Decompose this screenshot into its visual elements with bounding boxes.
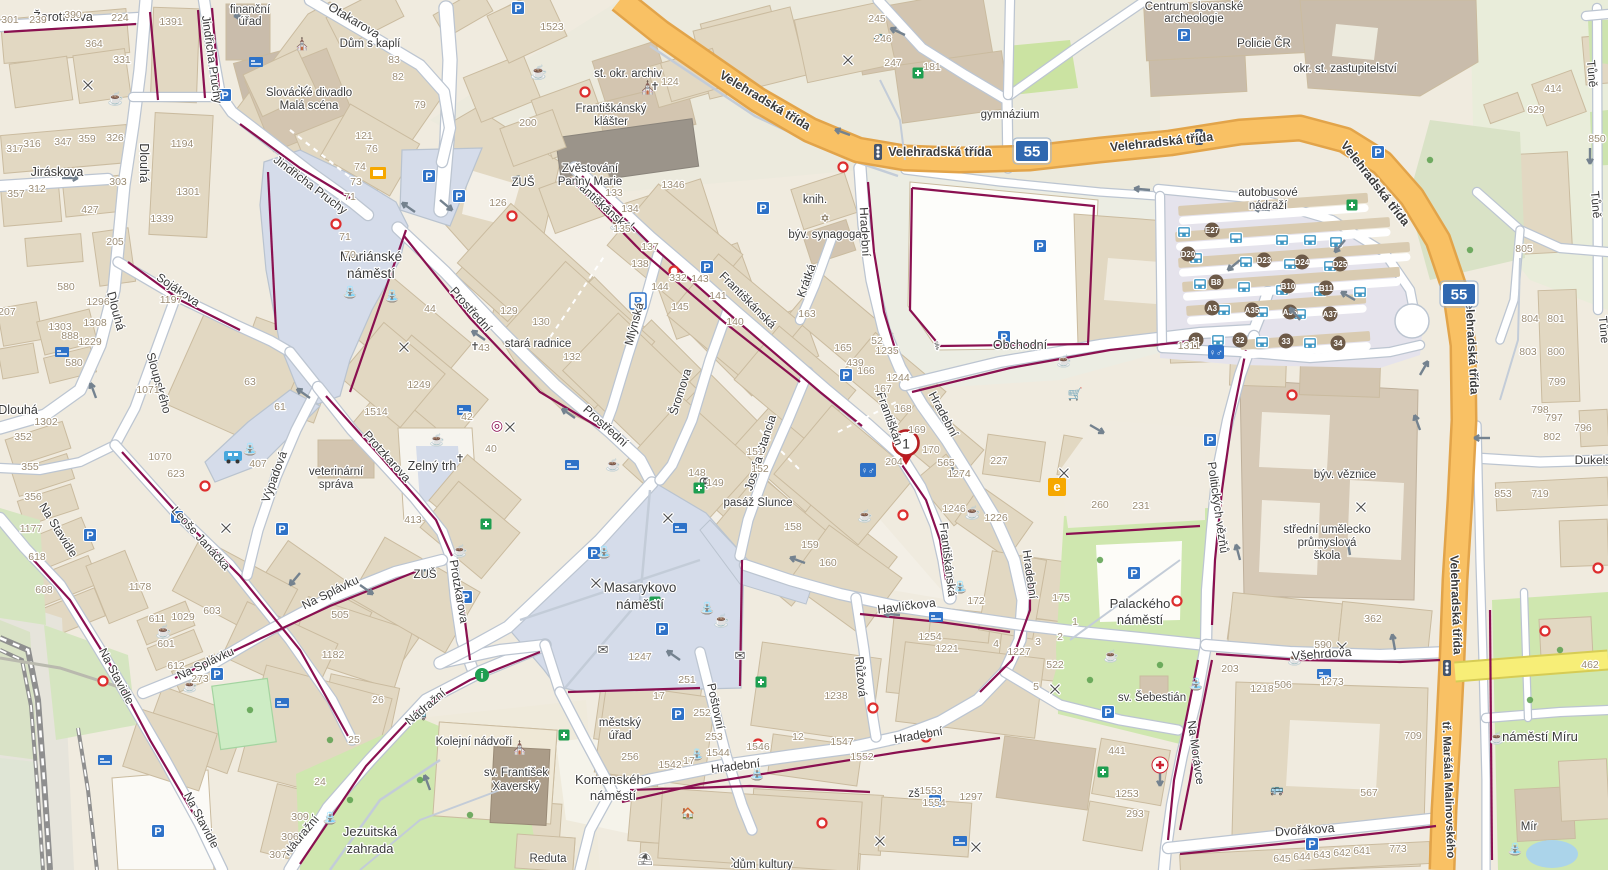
svg-text:Tůně: Tůně <box>1588 190 1604 219</box>
svg-text:293: 293 <box>1126 808 1144 820</box>
svg-text:306: 306 <box>281 831 299 843</box>
svg-text:autobusové: autobusové <box>1238 187 1297 199</box>
svg-text:A37: A37 <box>1323 310 1338 319</box>
svg-text:sv. František: sv. František <box>484 767 549 779</box>
svg-text:správa: správa <box>319 479 354 491</box>
svg-text:Jiráskova: Jiráskova <box>31 165 84 179</box>
svg-text:205: 205 <box>106 236 124 248</box>
svg-text:25: 25 <box>348 734 360 746</box>
svg-text:⨉: ⨉ <box>843 53 854 68</box>
svg-text:♀♂: ♀♂ <box>1209 348 1223 358</box>
svg-text:⛪: ⛪ <box>512 739 528 755</box>
svg-text:knih.: knih. <box>803 194 827 206</box>
svg-text:175: 175 <box>1052 592 1070 604</box>
svg-text:⨉: ⨉ <box>83 78 94 93</box>
svg-text:P: P <box>759 203 766 215</box>
svg-text:307: 307 <box>269 849 287 861</box>
svg-text:1544: 1544 <box>706 747 730 759</box>
svg-text:773: 773 <box>1389 843 1407 855</box>
svg-text:326: 326 <box>106 132 124 144</box>
svg-text:⚕: ⚕ <box>934 339 941 353</box>
svg-text:1: 1 <box>1072 616 1078 628</box>
svg-text:1552: 1552 <box>850 751 874 763</box>
svg-text:804: 804 <box>1521 313 1539 325</box>
svg-text:klášter: klášter <box>594 116 628 128</box>
svg-text:⛲: ⛲ <box>1508 842 1523 856</box>
svg-text:Mír: Mír <box>1521 821 1538 833</box>
svg-text:251: 251 <box>678 674 696 686</box>
svg-text:P: P <box>425 171 432 183</box>
svg-text:427: 427 <box>81 204 99 216</box>
svg-text:ZUŠ: ZUŠ <box>414 568 437 581</box>
svg-text:121: 121 <box>355 130 373 142</box>
svg-text:362: 362 <box>1364 613 1382 625</box>
svg-text:1553: 1553 <box>919 785 943 797</box>
svg-text:✝: ✝ <box>650 81 659 93</box>
svg-text:B8: B8 <box>1211 278 1222 287</box>
svg-text:gymnázium: gymnázium <box>981 109 1040 121</box>
svg-text:144: 144 <box>651 281 669 293</box>
svg-text:32: 32 <box>1236 336 1245 345</box>
svg-text:12: 12 <box>792 731 804 743</box>
svg-text:☕: ☕ <box>108 90 124 106</box>
svg-text:160: 160 <box>819 557 837 569</box>
svg-text:169: 169 <box>908 424 926 436</box>
svg-text:✉: ✉ <box>598 642 609 657</box>
svg-text:1542: 1542 <box>658 759 682 771</box>
svg-text:797: 797 <box>1545 412 1563 424</box>
svg-text:55: 55 <box>1024 144 1041 161</box>
svg-text:Policie ČR: Policie ČR <box>1237 37 1291 50</box>
svg-text:390: 390 <box>64 9 82 21</box>
svg-text:1273: 1273 <box>1320 676 1344 688</box>
svg-text:☕: ☕ <box>606 457 621 472</box>
svg-text:130: 130 <box>532 316 550 328</box>
svg-text:462: 462 <box>1581 659 1599 671</box>
svg-text:1221: 1221 <box>935 643 959 655</box>
svg-text:168: 168 <box>894 403 912 415</box>
svg-text:247: 247 <box>884 57 902 69</box>
svg-text:608: 608 <box>35 584 53 596</box>
svg-text:301: 301 <box>1 14 19 26</box>
svg-text:Masarykovo: Masarykovo <box>604 580 677 595</box>
svg-text:505: 505 <box>331 609 349 621</box>
svg-text:⨉: ⨉ <box>1356 500 1367 515</box>
svg-text:1547: 1547 <box>830 736 854 748</box>
svg-text:33: 33 <box>1282 337 1291 346</box>
svg-text:796: 796 <box>1574 422 1592 434</box>
svg-text:1311: 1311 <box>1178 340 1201 352</box>
svg-text:239: 239 <box>29 14 47 26</box>
svg-text:355: 355 <box>21 461 39 473</box>
svg-text:☕: ☕ <box>858 508 873 523</box>
svg-text:612: 612 <box>167 660 185 672</box>
svg-text:1514: 1514 <box>364 406 388 418</box>
svg-text:P: P <box>842 370 849 382</box>
svg-text:◎: ◎ <box>491 417 503 433</box>
svg-text:802: 802 <box>1543 431 1561 443</box>
svg-text:149: 149 <box>706 477 724 489</box>
svg-text:439: 439 <box>846 357 864 369</box>
svg-text:134: 134 <box>621 203 639 215</box>
svg-text:805: 805 <box>1515 243 1533 255</box>
svg-text:Slovácké divadlo: Slovácké divadlo <box>266 87 352 99</box>
svg-text:archeologie: archeologie <box>1164 13 1223 25</box>
svg-text:1177: 1177 <box>20 523 43 535</box>
svg-text:43: 43 <box>478 342 490 354</box>
svg-text:352: 352 <box>14 431 32 443</box>
svg-text:799: 799 <box>1548 376 1566 388</box>
svg-text:623: 623 <box>167 468 185 480</box>
svg-text:356: 356 <box>24 491 42 503</box>
svg-text:1070: 1070 <box>148 451 172 463</box>
svg-text:135: 135 <box>613 223 631 235</box>
svg-text:♀♂: ♀♂ <box>861 466 875 476</box>
svg-text:441: 441 <box>1108 745 1126 757</box>
svg-text:316: 316 <box>23 138 41 150</box>
svg-text:224: 224 <box>111 12 129 24</box>
svg-text:B10: B10 <box>1281 282 1296 291</box>
svg-text:141: 141 <box>709 290 727 302</box>
svg-text:167: 167 <box>874 383 892 395</box>
svg-text:227: 227 <box>990 455 1008 467</box>
svg-text:601: 601 <box>157 638 175 650</box>
svg-text:st. okr. archiv: st. okr. archiv <box>594 68 662 80</box>
svg-text:590: 590 <box>1314 639 1332 651</box>
svg-text:246: 246 <box>874 33 892 45</box>
svg-text:172: 172 <box>967 595 985 607</box>
svg-text:1254: 1254 <box>918 631 942 643</box>
svg-text:⨉: ⨉ <box>663 511 674 526</box>
svg-text:73: 73 <box>350 176 362 188</box>
svg-text:231: 231 <box>1132 500 1150 512</box>
svg-text:P: P <box>1180 30 1187 42</box>
svg-text:D24: D24 <box>1295 258 1310 267</box>
svg-text:1297: 1297 <box>959 791 983 803</box>
svg-text:2: 2 <box>1057 631 1063 643</box>
svg-text:158: 158 <box>784 521 802 533</box>
svg-text:Komenského: Komenského <box>575 772 651 787</box>
svg-text:Obchodní: Obchodní <box>993 338 1048 352</box>
svg-text:63: 63 <box>244 376 256 388</box>
svg-text:náměstí Míru: náměstí Míru <box>1502 729 1578 744</box>
svg-text:náměstí: náměstí <box>347 266 395 281</box>
svg-text:522: 522 <box>1046 659 1064 671</box>
svg-text:204: 204 <box>885 456 903 468</box>
svg-text:D25: D25 <box>1333 260 1348 269</box>
svg-text:náměstí: náměstí <box>616 597 664 612</box>
svg-text:1071: 1071 <box>136 384 160 396</box>
svg-text:⨉: ⨉ <box>971 840 982 855</box>
svg-text:567: 567 <box>1360 787 1378 799</box>
svg-text:407: 407 <box>249 458 267 470</box>
svg-text:náměstí: náměstí <box>590 788 637 803</box>
svg-text:P: P <box>213 669 220 681</box>
svg-text:🛒: 🛒 <box>1068 387 1083 401</box>
svg-text:Dlouhá: Dlouhá <box>0 403 38 417</box>
svg-text:P: P <box>1130 568 1137 580</box>
svg-text:145: 145 <box>671 301 689 313</box>
svg-text:1246: 1246 <box>942 503 966 515</box>
svg-text:82: 82 <box>392 71 404 83</box>
svg-text:801: 801 <box>1547 313 1565 325</box>
svg-text:D20: D20 <box>1181 250 1196 259</box>
svg-text:býv. věznice: býv. věznice <box>1314 469 1376 481</box>
svg-text:Zelný trh: Zelný trh <box>408 459 457 473</box>
svg-text:603: 603 <box>203 605 221 617</box>
svg-text:Františkánský: Františkánský <box>576 103 647 115</box>
svg-text:Centrum slovanské: Centrum slovanské <box>1145 1 1243 13</box>
svg-text:1229: 1229 <box>78 336 102 348</box>
svg-text:17: 17 <box>653 690 665 702</box>
svg-text:1178: 1178 <box>129 581 152 593</box>
svg-text:124: 124 <box>661 76 679 88</box>
svg-text:stará radnice: stará radnice <box>505 338 571 350</box>
svg-text:42: 42 <box>461 411 473 423</box>
svg-text:⛲: ⛲ <box>343 285 358 299</box>
svg-text:i: i <box>481 671 484 682</box>
svg-text:P: P <box>1374 147 1381 159</box>
svg-text:⨉: ⨉ <box>1050 682 1061 697</box>
svg-text:Velehradská třída: Velehradská třída <box>888 145 993 159</box>
svg-text:⛪: ⛪ <box>295 36 310 51</box>
svg-text:1235: 1235 <box>875 345 899 357</box>
svg-text:☕: ☕ <box>1104 648 1119 663</box>
svg-text:průmyslová: průmyslová <box>1298 537 1357 549</box>
svg-text:629: 629 <box>1527 104 1545 116</box>
svg-text:163: 163 <box>798 308 816 320</box>
svg-text:252: 252 <box>693 707 711 719</box>
svg-text:140: 140 <box>726 316 744 328</box>
svg-text:⨉: ⨉ <box>591 576 602 591</box>
svg-text:⛲: ⛲ <box>323 811 338 825</box>
svg-text:138: 138 <box>631 258 649 270</box>
svg-text:e: e <box>1053 479 1060 494</box>
svg-text:⨉: ⨉ <box>505 420 516 435</box>
svg-text:1207: 1207 <box>0 306 16 318</box>
svg-text:✉: ✉ <box>735 648 746 663</box>
svg-text:Kolejní nádvoří: Kolejní nádvoří <box>436 736 514 748</box>
svg-text:303: 303 <box>109 176 127 188</box>
svg-text:641: 641 <box>1353 845 1371 857</box>
svg-text:veterinární: veterinární <box>309 466 364 478</box>
svg-text:P: P <box>86 530 93 542</box>
svg-text:zš: zš <box>908 788 920 800</box>
svg-text:1197: 1197 <box>160 294 183 306</box>
svg-text:okr. st. zastupitelství: okr. st. zastupitelství <box>1293 63 1397 75</box>
svg-text:1218: 1218 <box>1250 683 1274 695</box>
svg-text:Xaverský: Xaverský <box>492 781 540 793</box>
svg-text:129: 129 <box>500 305 518 317</box>
svg-text:Tůně: Tůně <box>1584 59 1600 88</box>
svg-text:1182: 1182 <box>322 649 345 661</box>
svg-text:1226: 1226 <box>984 512 1008 524</box>
svg-text:1303: 1303 <box>48 321 72 333</box>
svg-text:náměstí: náměstí <box>1117 612 1164 627</box>
svg-text:P: P <box>658 624 665 636</box>
svg-text:⨉: ⨉ <box>875 834 886 849</box>
svg-text:1302: 1302 <box>34 416 58 428</box>
svg-text:✝: ✝ <box>455 453 464 465</box>
svg-text:D23: D23 <box>1257 256 1272 265</box>
svg-text:1391: 1391 <box>159 16 183 28</box>
svg-text:1339: 1339 <box>150 213 174 225</box>
svg-text:P: P <box>1206 435 1213 447</box>
svg-text:1194: 1194 <box>171 138 194 150</box>
svg-text:pasáž Slunce: pasáž Slunce <box>723 497 792 509</box>
svg-text:škola: škola <box>1314 550 1341 562</box>
svg-text:⛲: ⛲ <box>385 289 400 303</box>
svg-text:803: 803 <box>1519 346 1537 358</box>
svg-text:1253: 1253 <box>1115 788 1139 800</box>
svg-text:☕: ☕ <box>453 543 468 558</box>
svg-text:Zvěstování: Zvěstování <box>562 163 619 175</box>
svg-text:79: 79 <box>414 99 426 111</box>
svg-text:P: P <box>674 709 681 721</box>
svg-text:☕: ☕ <box>156 623 172 639</box>
svg-text:61: 61 <box>274 401 286 413</box>
svg-text:137: 137 <box>641 241 659 253</box>
svg-text:611: 611 <box>149 613 166 625</box>
svg-text:71: 71 <box>344 191 356 203</box>
svg-text:143: 143 <box>691 273 709 285</box>
svg-text:Malá scéna: Malá scéna <box>280 100 339 112</box>
svg-text:133: 133 <box>605 187 623 199</box>
svg-text:P: P <box>154 826 161 838</box>
svg-text:200: 200 <box>519 117 537 129</box>
svg-text:580: 580 <box>65 357 83 369</box>
svg-text:P: P <box>514 3 521 15</box>
svg-text:Dukelsk: Dukelsk <box>1575 453 1608 467</box>
svg-text:642: 642 <box>1333 847 1351 859</box>
svg-text:40: 40 <box>485 443 497 455</box>
svg-text:644: 644 <box>1293 851 1311 863</box>
svg-text:úřad: úřad <box>608 730 631 742</box>
svg-text:1238: 1238 <box>824 690 848 702</box>
svg-text:309: 309 <box>291 811 309 823</box>
svg-text:⛲: ⛲ <box>700 601 715 615</box>
svg-text:1301: 1301 <box>176 186 200 198</box>
svg-text:1247: 1247 <box>628 651 652 663</box>
svg-text:181: 181 <box>923 61 941 73</box>
svg-text:⛲: ⛲ <box>1189 677 1204 691</box>
svg-text:4: 4 <box>993 638 999 650</box>
svg-text:260: 260 <box>1091 499 1109 511</box>
svg-text:34: 34 <box>1334 339 1343 348</box>
svg-text:Dlouhá: Dlouhá <box>137 143 151 183</box>
svg-text:317: 317 <box>6 143 24 155</box>
svg-text:719: 719 <box>1531 488 1549 500</box>
svg-text:245: 245 <box>868 13 886 25</box>
svg-text:643: 643 <box>1313 849 1331 861</box>
svg-text:413: 413 <box>404 514 422 526</box>
svg-text:203: 203 <box>1221 663 1239 675</box>
svg-text:🚌: 🚌 <box>1270 784 1284 796</box>
svg-text:618: 618 <box>28 551 46 563</box>
svg-text:800: 800 <box>1547 346 1565 358</box>
svg-text:126: 126 <box>489 197 507 209</box>
svg-text:⨉: ⨉ <box>221 521 232 536</box>
svg-text:E27: E27 <box>1205 226 1220 235</box>
svg-text:151: 151 <box>746 446 764 458</box>
svg-text:⛲: ⛲ <box>597 545 612 559</box>
svg-text:645: 645 <box>1273 853 1291 865</box>
svg-text:347: 347 <box>54 136 72 148</box>
svg-text:dům kultury: dům kultury <box>733 859 793 870</box>
svg-text:Palackého: Palackého <box>1110 596 1171 611</box>
svg-text:☕: ☕ <box>965 504 981 520</box>
svg-text:256: 256 <box>621 751 639 763</box>
svg-text:273: 273 <box>191 673 209 685</box>
svg-text:nádraží: nádraží <box>1249 200 1288 212</box>
svg-text:1029: 1029 <box>171 611 195 623</box>
svg-text:☕: ☕ <box>1057 353 1072 368</box>
svg-text:sv. Šebestián: sv. Šebestián <box>1118 691 1186 704</box>
svg-text:506: 506 <box>1274 679 1292 691</box>
svg-text:P: P <box>455 191 462 203</box>
svg-text:331: 331 <box>113 54 131 66</box>
svg-text:☕: ☕ <box>714 612 730 628</box>
svg-text:🏠: 🏠 <box>681 807 695 820</box>
svg-text:76: 76 <box>366 143 378 155</box>
svg-text:✡: ✡ <box>820 213 829 225</box>
svg-text:býv. synagoga: býv. synagoga <box>788 229 862 241</box>
svg-text:165: 165 <box>834 342 852 354</box>
svg-text:městský: městský <box>599 717 641 729</box>
svg-text:359: 359 <box>78 133 96 145</box>
svg-text:132: 132 <box>563 351 581 363</box>
svg-text:24: 24 <box>314 776 326 788</box>
svg-text:střední umělecko: střední umělecko <box>1283 524 1371 536</box>
svg-text:P: P <box>278 524 285 536</box>
svg-text:1227: 1227 <box>1007 646 1031 658</box>
svg-text:1346: 1346 <box>661 179 685 191</box>
svg-text:⛲: ⛲ <box>243 442 258 456</box>
svg-text:170: 170 <box>922 444 940 456</box>
svg-text:1546: 1546 <box>746 741 770 753</box>
svg-text:Dům s kaplí: Dům s kaplí <box>340 38 402 50</box>
svg-text:⨉: ⨉ <box>399 340 410 355</box>
svg-text:70: 70 <box>344 249 356 261</box>
svg-text:3: 3 <box>1035 636 1041 648</box>
svg-text:414: 414 <box>1544 83 1562 95</box>
svg-text:zahrada: zahrada <box>347 841 395 856</box>
svg-text:580: 580 <box>57 281 75 293</box>
svg-text:B11: B11 <box>1319 284 1334 293</box>
svg-text:P: P <box>1036 241 1043 253</box>
svg-text:152: 152 <box>751 463 769 475</box>
svg-text:A35: A35 <box>1245 306 1260 315</box>
svg-text:312: 312 <box>28 183 46 195</box>
svg-text:26: 26 <box>372 694 384 706</box>
svg-text:55: 55 <box>1451 287 1468 304</box>
svg-text:ZUŠ: ZUŠ <box>512 176 535 189</box>
svg-text:332: 332 <box>669 272 687 284</box>
svg-text:1274: 1274 <box>947 468 971 480</box>
svg-text:Reduta: Reduta <box>529 853 567 865</box>
svg-text:P: P <box>1104 707 1111 719</box>
svg-text:357: 357 <box>7 188 25 200</box>
svg-text:A3: A3 <box>1207 304 1218 313</box>
svg-text:5: 5 <box>1033 681 1039 693</box>
svg-text:74: 74 <box>354 161 366 173</box>
svg-text:364: 364 <box>85 38 103 50</box>
svg-text:1249: 1249 <box>407 379 431 391</box>
svg-text:709: 709 <box>1404 730 1422 742</box>
svg-text:finanční: finanční <box>230 4 271 16</box>
svg-text:⛱: ⛱ <box>637 852 652 866</box>
svg-text:71: 71 <box>339 231 351 243</box>
